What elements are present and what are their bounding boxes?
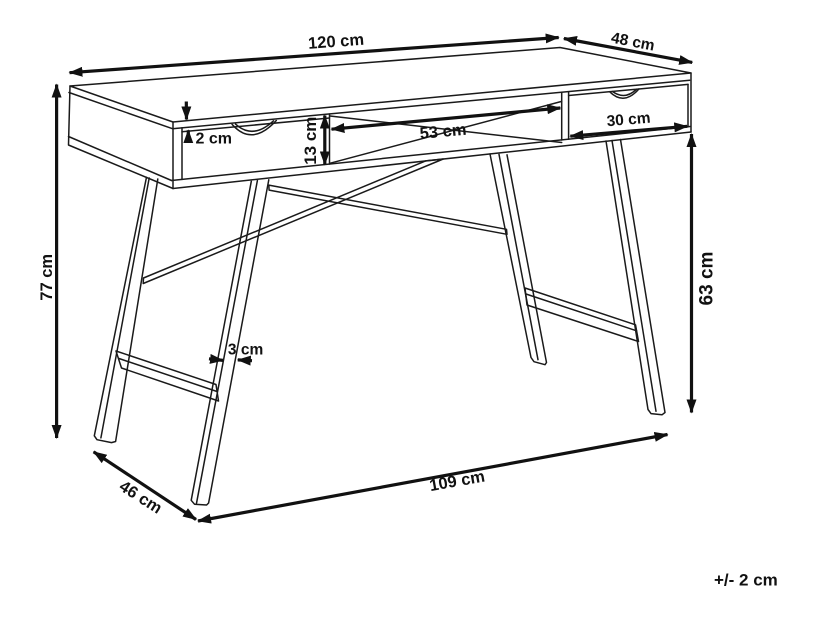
svg-text:63 cm: 63 cm [697, 252, 718, 306]
svg-text:13 cm: 13 cm [301, 117, 320, 165]
svg-text:120 cm: 120 cm [307, 31, 364, 53]
svg-text:30 cm: 30 cm [606, 110, 651, 131]
svg-text:109 cm: 109 cm [428, 467, 486, 495]
svg-text:3 cm: 3 cm [228, 342, 263, 359]
svg-text:+/- 2 cm: +/- 2 cm [714, 570, 778, 589]
svg-text:77 cm: 77 cm [38, 254, 56, 301]
svg-text:2 cm: 2 cm [196, 130, 232, 147]
svg-text:53 cm: 53 cm [419, 121, 467, 143]
